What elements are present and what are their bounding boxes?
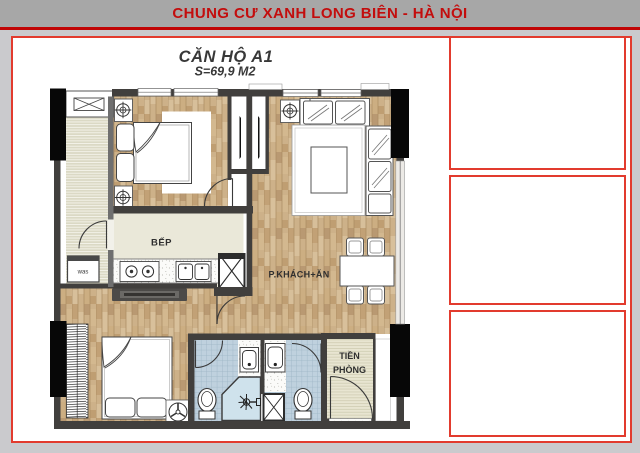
svg-text:S=69,9 M2: S=69,9 M2: [195, 65, 256, 79]
svg-text:BẾP: BẾP: [151, 238, 172, 249]
svg-text:PHÒNG: PHÒNG: [333, 364, 366, 375]
svg-text:was: was: [77, 270, 89, 276]
svg-text:TIỀN: TIỀN: [339, 351, 360, 361]
svg-text:CĂN HỘ A1: CĂN HỘ A1: [179, 47, 274, 66]
svg-text:P.KHÁCH+ĂN: P.KHÁCH+ĂN: [268, 270, 329, 280]
